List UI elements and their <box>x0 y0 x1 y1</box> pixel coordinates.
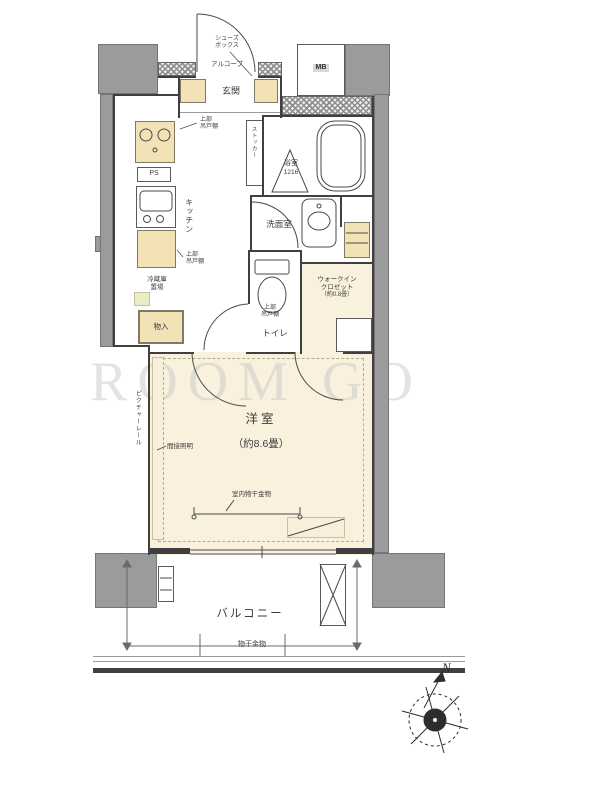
wall-bedroom-top <box>148 352 194 354</box>
utility-panel <box>134 292 150 306</box>
wall-bath-top <box>262 115 372 117</box>
toilet-upper-cabinet-line2: 吊戸棚 <box>250 312 290 319</box>
fridge-label-line1: 冷蔵庫 <box>139 276 175 284</box>
room-label-balcony: バルコニー <box>193 608 307 622</box>
bedroom-size-label: （約8.6畳） <box>200 438 322 451</box>
balcony-hanger-label: 物干金物 <box>222 641 282 649</box>
concrete-column-top-left <box>98 44 158 94</box>
wall <box>148 345 150 555</box>
picture-rail-label: ピクチャーレール <box>133 390 140 520</box>
ac-unit-space <box>287 517 345 538</box>
room-label-washroom: 洗面室 <box>251 219 307 229</box>
wall <box>113 345 150 347</box>
wall-bath-bottom <box>262 195 372 197</box>
wall-toilet-left <box>248 250 250 304</box>
wall-bedroom-bottom <box>148 548 190 554</box>
floor-plan: ROOM GO MB PS 物入 <box>0 0 600 800</box>
wall <box>250 195 264 197</box>
concrete-column-bottom-right <box>372 553 445 608</box>
concrete-wall-left <box>100 94 113 347</box>
concrete-column-bottom-left <box>95 553 157 608</box>
shoes-box-label-line2: ボックス <box>197 43 257 50</box>
wall-bedroom-top <box>343 352 372 354</box>
bathtub <box>317 121 365 191</box>
wall <box>340 195 342 227</box>
wall <box>280 76 282 118</box>
railing-line <box>93 656 465 657</box>
kitchen-counter-low <box>137 230 176 268</box>
wic-label-line1: ウォークイン <box>303 276 371 284</box>
entry-step-line <box>178 112 280 113</box>
hatched-wall-left-of-door <box>158 62 196 76</box>
wall <box>178 76 180 118</box>
bedroom-side-counter <box>152 357 164 540</box>
wall-bedroom-top <box>246 352 295 354</box>
concrete-column-top-right <box>345 44 390 96</box>
bath-size-label: 1216 <box>278 169 304 177</box>
indirect-light-label: 間接照明 <box>167 443 193 451</box>
wall <box>258 76 282 78</box>
room-label-bedroom: 洋室 <box>200 412 322 427</box>
wall <box>113 94 115 347</box>
shoe-box-right <box>254 79 278 103</box>
washer-shelf-unit <box>344 222 370 258</box>
indoor-hanger-label: 室内物干金物 <box>232 491 271 499</box>
stove-unit <box>135 121 175 163</box>
hatched-wall-right-of-door <box>258 62 282 76</box>
room-label-kitchen: キッチン <box>184 198 194 258</box>
wic-label-line2: クロゼット <box>303 284 371 292</box>
kitchen-sink <box>136 186 176 228</box>
wic-size-label: （約0.8畳） <box>303 292 371 299</box>
washbasin <box>302 199 336 247</box>
upper-cabinet-label-1b: 吊戸棚 <box>200 124 218 131</box>
wall-bath-left <box>262 115 264 197</box>
wall-wic-top <box>302 262 372 264</box>
wic-corner-notch <box>336 318 372 352</box>
wall-right-outer <box>372 96 374 555</box>
room-label-genkan: 玄関 <box>206 86 256 97</box>
balcony-hatch-box <box>320 564 346 626</box>
storage-label: 物入 <box>138 322 184 331</box>
wall-toilet-right <box>300 250 302 354</box>
wall <box>248 250 302 252</box>
wall-bedroom-bottom <box>336 548 374 554</box>
fridge-label-line2: 置場 <box>139 284 175 292</box>
railing-bar <box>93 668 465 673</box>
upper-cabinet-label-2b: 吊戸棚 <box>186 259 204 266</box>
toilet-door-arc <box>204 304 248 350</box>
room-label-toilet: トイレ <box>252 328 298 338</box>
railing-line <box>93 661 465 662</box>
compass-north-label: N <box>442 660 451 676</box>
alcove-label: アルコーブ <box>197 61 257 69</box>
compass-rose <box>402 672 468 753</box>
wall <box>158 76 196 78</box>
stocker-label: ストッカー <box>250 126 257 159</box>
room-label-bath: 浴室 <box>278 160 304 168</box>
hatched-wall-corridor-right <box>282 96 372 115</box>
meter-box-label: MB <box>313 64 329 72</box>
concrete-stub-left <box>95 236 101 252</box>
pipe-space-label: PS <box>137 170 171 178</box>
concrete-wall-right <box>374 94 389 553</box>
wall <box>113 94 180 96</box>
shoe-box-left <box>180 79 206 103</box>
balcony-drain-pipe <box>158 566 174 602</box>
